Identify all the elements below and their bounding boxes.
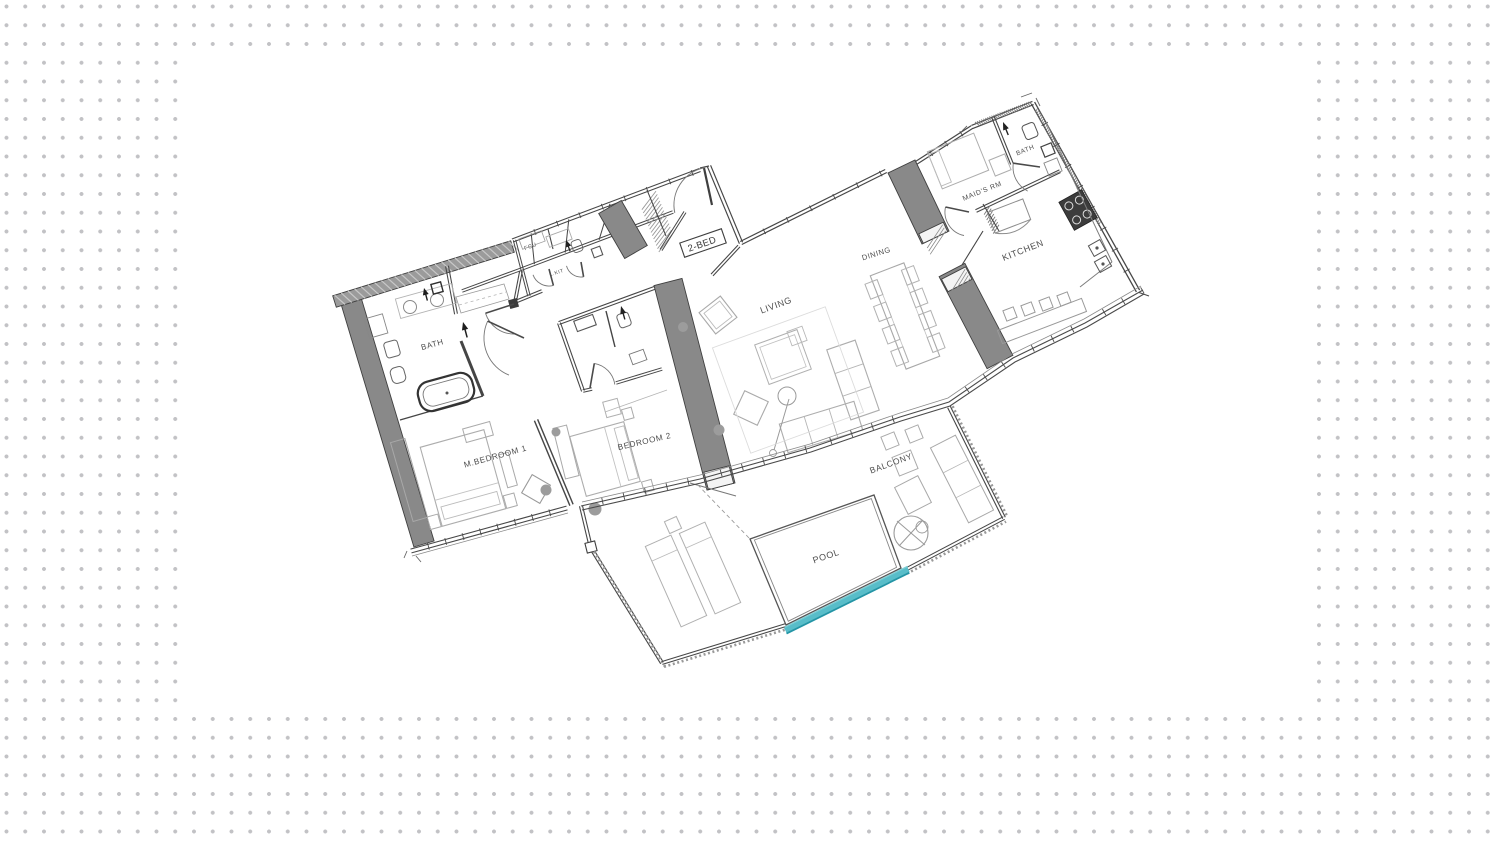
svg-text:BALCONY: BALCONY — [868, 451, 914, 476]
svg-text:BEDROOM 2: BEDROOM 2 — [617, 431, 672, 452]
svg-text:BATH: BATH — [420, 337, 445, 352]
svg-text:POOL: POOL — [811, 547, 840, 565]
svg-text:M.BEDROOM 1: M.BEDROOM 1 — [463, 444, 528, 470]
svg-text:KITCHEN: KITCHEN — [1001, 238, 1045, 263]
svg-text:DINING: DINING — [861, 245, 892, 262]
svg-text:LIVING: LIVING — [759, 295, 794, 316]
svg-text:BATH: BATH — [1015, 144, 1035, 158]
svg-text:FCU: FCU — [523, 242, 537, 252]
